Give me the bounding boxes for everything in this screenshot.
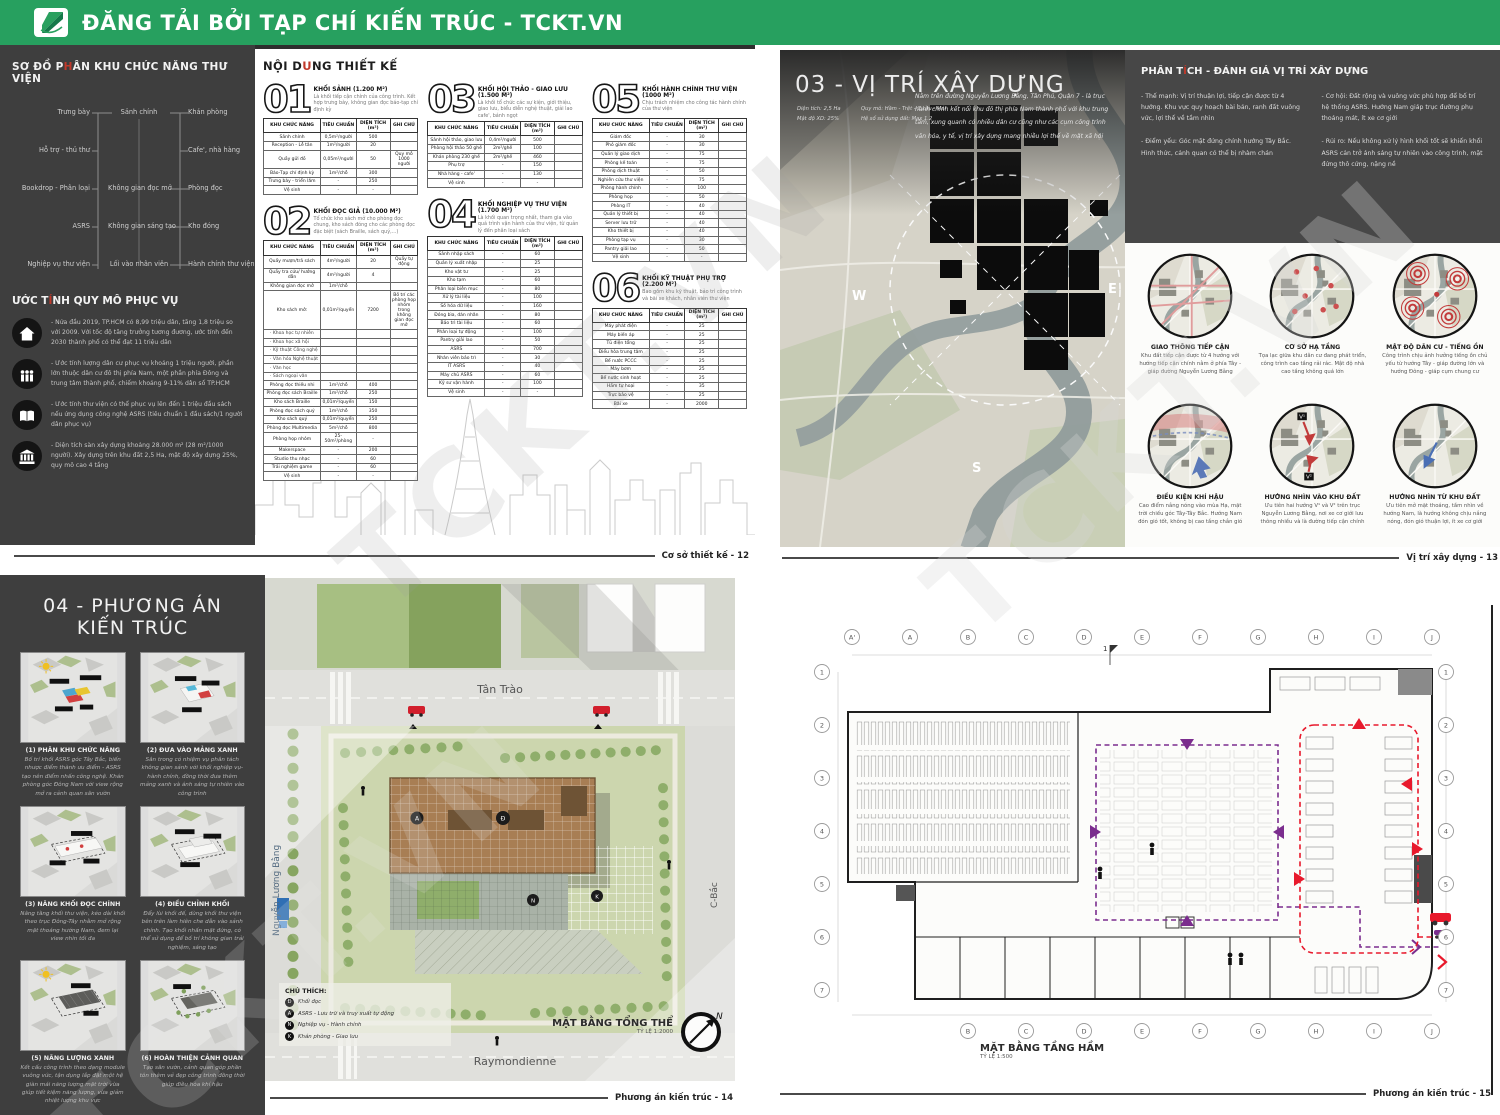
quadrant-footer: Phương án kiến trúc - 15 <box>780 1089 1491 1099</box>
street-label-east: C-Bắc <box>709 882 720 908</box>
footer-rule <box>780 1093 1366 1095</box>
section-number: 01 <box>263 83 311 116</box>
svg-text:N: N <box>716 1012 723 1022</box>
footer-rule <box>14 555 655 557</box>
legend-label: Nghiệp vụ - Hành chính <box>298 1022 361 1028</box>
legend-glyph-icon: N <box>285 1021 294 1030</box>
program-column-2: 03KHỐI HỘI THẢO - GIAO LƯU (1.500 M²)Là … <box>427 83 582 481</box>
compass-letter-s: S <box>972 461 981 476</box>
panel-architecture-concept: 04 - PHƯƠNG ÁN KIẾN TRÚC (1) PHÂN KHU CH… <box>0 575 735 1115</box>
grid-label: 3 <box>820 774 824 782</box>
footer-label: Cơ sở thiết kế - 12 <box>662 551 749 561</box>
legend-label: Khối đọc <box>298 999 321 1005</box>
concept-step: (6) HOÀN THIỆN CẢNH QUANTạo sân vườn, cả… <box>140 960 246 1106</box>
section-desc: Là khối tiếp cận chính của công trình. K… <box>314 94 419 113</box>
site-stat: Diện tích: 2,5 Ha <box>797 106 855 112</box>
basement-plan-art: 1 A'ABBCCDDEEFFGGHHIIJJ11223344556677 <box>800 617 1460 1047</box>
diagram-node: Khán phòng <box>188 108 244 116</box>
concept-step: (2) ĐƯA VÀO MẢNG XANHSân trong có nhiệm … <box>140 652 246 798</box>
step-caption: Đẩy lùi khối đế, dùng khối thư viện bên … <box>140 910 246 952</box>
site-circle: HƯỚNG NHÌN TỪ KHU ĐẤTƯu tiên mở mặt thoá… <box>1378 403 1492 547</box>
step-caption: Kết cấu công trình theo dạng module vuôn… <box>20 1064 126 1106</box>
quadrant-footer: Cơ sở thiết kế - 12 <box>14 551 749 561</box>
analysis-item: - Rủi ro: Nếu không xử lý hình khối tốt … <box>1322 136 1485 169</box>
program-table: KHU CHỨC NĂNGTIÊU CHUẨNDIỆN TÍCH (m²)GHI… <box>263 240 418 481</box>
site-intro: Nằm trên đường Nguyễn Lương Bằng, Tân Ph… <box>915 90 1115 143</box>
step-title: (4) ĐIỀU CHỈNH KHỐI <box>140 901 246 908</box>
circle-map-art: V¹V² <box>1269 403 1355 489</box>
program-section: 06KHỐI KỸ THUẬT PHỤ TRỢ (2.200 M²)Bao gồ… <box>592 272 747 408</box>
diagram-node: Lối vào nhân viên <box>108 260 170 268</box>
step-thumb-art <box>140 806 246 897</box>
diagram-node: Phòng đọc <box>188 184 244 192</box>
grid-label: F <box>1198 633 1202 641</box>
estimate-item: - Ước tính thư viện có thể phục vụ lên đ… <box>12 400 243 430</box>
footer-label: Phương án kiến trúc - 14 <box>615 1093 733 1103</box>
diagram-title: SƠ ĐỒ PHÂN KHU CHỨC NĂNG THƯ VIỆN <box>12 61 243 85</box>
basement-label-box: MẶT BẰNG TẦNG HẦM TỶ LỆ 1:500 <box>980 1043 1104 1060</box>
step-caption: Nâng tầng khối thư viện, kéo dài khối th… <box>20 910 126 944</box>
street-label-south: Raymondienne <box>474 1055 557 1068</box>
street-label-west: Nguyễn Lương Bằng <box>271 845 282 936</box>
grid-label: 3 <box>1444 774 1448 782</box>
program-section: 02KHỐI ĐỌC GIẢ (10.000 M²)Tổ chức kho sá… <box>263 205 418 481</box>
grid-label: F <box>1198 1027 1202 1035</box>
grid-label: G <box>1255 1027 1260 1035</box>
section-head: 04KHỐI NGHIỆP VỤ THƯ VIỆN (1.700 M²)Là k… <box>427 198 582 234</box>
estimate-item: - Ước tính lượng dân cư phục vụ khoảng 1… <box>12 359 243 389</box>
program-column-3: 05KHỐI HÀNH CHÍNH THƯ VIỆN (1000 M²)Chịu… <box>592 83 747 481</box>
panel-basement-plan: 1 A'ABBCCDDEEFFGGHHIIJJ11223344556677 MẶ… <box>780 605 1495 1105</box>
circle-title: HƯỚNG NHÌN TỪ KHU ĐẤT <box>1389 494 1480 501</box>
legend-box: CHÚ THÍCH: ĐKhối đọcAASRS - Lưu trữ và t… <box>279 983 451 1046</box>
grid-label: G <box>1255 633 1260 641</box>
section-number: 03 <box>427 83 475 119</box>
section-number: 06 <box>592 272 640 305</box>
compass-letter-e: E <box>1108 282 1117 297</box>
section-number: 04 <box>427 198 475 234</box>
circle-title: ĐIỀU KIỆN KHÍ HẬU <box>1157 494 1224 501</box>
grid-label: D <box>1081 633 1086 641</box>
section-title: KHỐI ĐỌC GIẢ (10.000 M²) <box>314 209 419 215</box>
concept-step: (5) NĂNG LƯỢNG XANHKết cấu công trình th… <box>20 960 126 1106</box>
circle-title: MẬT ĐỘ DÂN CƯ - TIẾNG ỒN <box>1386 344 1483 351</box>
analysis-list: - Thế mạnh: Vị trí thuận lợi, tiếp cận đ… <box>1141 91 1484 170</box>
building-icon <box>12 441 42 471</box>
plan-label-box: MẶT BẰNG TỔNG THỂ TỶ LỆ 1:2000 <box>552 1018 673 1035</box>
analysis-panel: PHÂN TÍCH - ĐÁNH GIÁ VỊ TRÍ XÂY DỰNG - T… <box>1125 50 1500 243</box>
svg-text:1: 1 <box>1103 645 1107 653</box>
section-head: 05KHỐI HÀNH CHÍNH THƯ VIỆN (1000 M²)Chịu… <box>592 83 747 116</box>
circle-caption: Ưu tiên hai hướng V¹ và V² trên trục Ngu… <box>1255 503 1369 527</box>
street-label-north: Tân Trào <box>476 683 523 696</box>
plan-scale: TỶ LỆ 1:2000 <box>552 1029 673 1035</box>
content-title: NỘI DUNG THIẾT KẾ <box>263 59 747 73</box>
section-title: KHỐI NGHIỆP VỤ THƯ VIỆN (1.700 M²) <box>478 202 583 214</box>
diagram-node: Cafe', nhà hàng <box>188 146 244 154</box>
grid-label: H <box>1314 1027 1319 1035</box>
basement-scale: TỶ LỆ 1:500 <box>980 1054 1104 1060</box>
legend-item: ĐKhối đọc <box>285 998 445 1007</box>
program-table: KHU CHỨC NĂNGTIÊU CHUẨNDIỆN TÍCH (m²)GHI… <box>592 118 747 262</box>
program-section: 04KHỐI NGHIỆP VỤ THƯ VIỆN (1.700 M²)Là k… <box>427 198 582 397</box>
svg-text:V²: V² <box>1306 474 1312 481</box>
section-head: 02KHỐI ĐỌC GIẢ (10.000 M²)Tổ chức kho sá… <box>263 205 418 238</box>
grid-label: 1 <box>820 668 824 676</box>
diagram-node: Kho đóng <box>188 222 244 230</box>
section-desc: Chịu trách nhiệm cho công tác hành chính… <box>642 100 747 113</box>
site-circle: GIAO THÔNG TIẾP CẬNKhu đất tiếp cận được… <box>1133 253 1247 397</box>
grid-label: H <box>1314 633 1319 641</box>
footer-label: Vị trí xây dựng - 13 <box>1406 553 1498 563</box>
program-column-1: 01KHỐI SẢNH (1.200 M²)Là khối tiếp cận c… <box>263 83 418 481</box>
circle-title: GIAO THÔNG TIẾP CẬN <box>1151 344 1230 351</box>
circle-title: CƠ SỞ HẠ TẦNG <box>1285 344 1341 351</box>
program-table: KHU CHỨC NĂNGTIÊU CHUẨNDIỆN TÍCH (m²)GHI… <box>427 121 582 188</box>
panel-border <box>1491 605 1493 1095</box>
diagram-node: Hỗ trợ - thủ thư <box>12 146 90 154</box>
circle-map-art <box>1392 253 1478 339</box>
grid-label: C <box>1024 633 1029 641</box>
grid-label: B <box>966 633 970 641</box>
concept-step: (1) PHÂN KHU CHỨC NĂNGBố trí khối ASRS g… <box>20 652 126 798</box>
concept-steps: (1) PHÂN KHU CHỨC NĂNGBố trí khối ASRS g… <box>20 652 245 1106</box>
compass-letter-w: W <box>852 289 866 304</box>
step-thumb-art <box>20 652 126 743</box>
grid-label: D <box>1081 1027 1086 1035</box>
step-title: (1) PHÂN KHU CHỨC NĂNG <box>20 747 126 754</box>
site-map: W E S 03 - VỊ TRÍ XÂY DỰNG Diện tích: 2,… <box>780 50 1500 547</box>
banner-title: ĐĂNG TẢI BỞI TẠP CHÍ KIẾN TRÚC - TCKT.VN <box>82 11 623 35</box>
grid-label: A' <box>849 633 855 641</box>
estimate-item: - Diện tích sàn xây dựng khoảng 28.000 m… <box>12 441 243 471</box>
grid-label: 5 <box>820 880 824 888</box>
legend-glyph-icon: Đ <box>285 998 294 1007</box>
concept-step: (3) NÂNG KHỐI ĐỌC CHÍNHNâng tầng khối th… <box>20 806 126 952</box>
grid-label: I <box>1373 633 1375 641</box>
estimate-text: - Ước tính lượng dân cư phục vụ khoảng 1… <box>51 359 243 388</box>
program-section: 05KHỐI HÀNH CHÍNH THƯ VIỆN (1000 M²)Chịu… <box>592 83 747 262</box>
concept-sidebar: 04 - PHƯƠNG ÁN KIẾN TRÚC (1) PHÂN KHU CH… <box>0 575 265 1115</box>
section-desc: Là khối quan trọng nhất, tham gia vào qu… <box>478 215 583 234</box>
site-circle: ĐIỀU KIỆN KHÍ HẬUCao điểm nắng nóng vào … <box>1133 403 1247 547</box>
program-content: NỘI DUNG THIẾT KẾ 01KHỐI SẢNH (1.200 M²)… <box>255 45 755 545</box>
step-caption: Bố trí khối ASRS góc Tây Bắc, biến nhược… <box>20 756 126 798</box>
step-thumb-art <box>140 652 246 743</box>
section-desc: Bao gồm khu kỹ thuật, bảo trì công trình… <box>642 289 747 302</box>
section-title: KHỐI HỘI THẢO - GIAO LƯU (1.500 M²) <box>478 87 583 99</box>
program-section: 03KHỐI HỘI THẢO - GIAO LƯU (1.500 M²)Là … <box>427 83 582 188</box>
circle-caption: Khu đất tiếp cận được từ 4 hướng với hướ… <box>1133 353 1247 377</box>
estimate-title: ƯỚC TÍNH QUY MÔ PHỤC VỤ <box>12 295 243 307</box>
grid-label: B <box>966 1027 970 1035</box>
panel-design-basis: SƠ ĐỒ PHÂN KHU CHỨC NĂNG THƯ VIỆN Trưng … <box>0 45 755 565</box>
step-title: (3) NÂNG KHỐI ĐỌC CHÍNH <box>20 901 126 908</box>
grid-label: 1 <box>1444 668 1448 676</box>
estimate-item: - Nửa đầu 2019, TP.HCM có 8,99 triệu dân… <box>12 318 243 348</box>
function-diagram: Trưng bàyHỗ trợ - thủ thưBookdrop - Phân… <box>12 101 243 287</box>
estimate-list: - Nửa đầu 2019, TP.HCM có 8,99 triệu dân… <box>12 318 243 471</box>
grid-label: 6 <box>820 933 824 941</box>
grid-label: 7 <box>820 986 824 994</box>
program-table: KHU CHỨC NĂNGTIÊU CHUẨNDIỆN TÍCH (m²)GHI… <box>427 236 582 397</box>
grid-label: C <box>1024 1027 1029 1035</box>
diagram-node: Không gian sáng tạo <box>108 222 170 230</box>
program-columns: 01KHỐI SẢNH (1.200 M²)Là khối tiếp cận c… <box>263 83 747 481</box>
analysis-item: - Thế mạnh: Vị trí thuận lợi, tiếp cận đ… <box>1141 91 1304 124</box>
grid-label: J <box>1430 633 1433 641</box>
panel-site-location: W E S 03 - VỊ TRÍ XÂY DỰNG Diện tích: 2,… <box>780 50 1500 565</box>
concept-step: (4) ĐIỀU CHỈNH KHỐIĐẩy lùi khối đế, dùng… <box>140 806 246 952</box>
diagram-node: Hành chính thư viện <box>188 260 244 268</box>
svg-text:V¹: V¹ <box>1300 413 1306 420</box>
circle-caption: Cao điểm nắng nóng vào mùa Hạ, mặt trời … <box>1133 503 1247 527</box>
step-title: (5) NĂNG LƯỢNG XANH <box>20 1055 126 1062</box>
grid-label: E <box>1140 633 1144 641</box>
step-thumb-art <box>140 960 246 1051</box>
site-circle: V¹V²HƯỚNG NHÌN VÀO KHU ĐẤTƯu tiên hai hư… <box>1255 403 1369 547</box>
legend-label: Khán phòng - Giao lưu <box>298 1034 358 1040</box>
legend-item: AASRS - Lưu trữ và truy xuất tự động <box>285 1009 445 1018</box>
grid-label: 2 <box>820 721 824 729</box>
grid-label: J <box>1430 1027 1433 1035</box>
section-head: 01KHỐI SẢNH (1.200 M²)Là khối tiếp cận c… <box>263 83 418 116</box>
svg-text:N: N <box>531 899 535 905</box>
circle-map-art <box>1147 253 1233 339</box>
grid-label: 4 <box>1444 827 1448 835</box>
step-title: (6) HOÀN THIỆN CẢNH QUAN <box>140 1055 246 1062</box>
car-icon <box>1430 913 1451 925</box>
footer-rule <box>270 1097 608 1099</box>
legend-glyph-icon: A <box>285 1009 294 1018</box>
tckt-logo-icon <box>34 8 68 37</box>
section-title: KHỐI KỸ THUẬT PHỤ TRỢ (2.200 M²) <box>642 276 747 288</box>
section-head: 06KHỐI KỸ THUẬT PHỤ TRỢ (2.200 M²)Bao gồ… <box>592 272 747 305</box>
grid-label: E <box>1140 1027 1144 1035</box>
plan-label: MẶT BẰNG TỔNG THỂ <box>552 1018 673 1029</box>
footer-rule <box>782 557 1399 559</box>
estimate-text: - Ước tính thư viện có thể phục vụ lên đ… <box>51 400 243 429</box>
legend-item: KKhán phòng - Giao lưu <box>285 1032 445 1041</box>
circle-caption: Ưu tiên mở mặt thoáng, tầm nhìn về hướng… <box>1378 503 1492 527</box>
legend-item: NNghiệp vụ - Hành chính <box>285 1021 445 1030</box>
step-caption: Tạo sân vườn, cảnh quan góp phần tôn thê… <box>140 1064 246 1089</box>
circle-map-art <box>1147 403 1233 489</box>
step-thumb-art <box>20 806 126 897</box>
grid-label: 6 <box>1444 933 1448 941</box>
banner: ĐĂNG TẢI BỞI TẠP CHÍ KIẾN TRÚC - TCKT.VN <box>0 0 1500 45</box>
analysis-title: PHÂN TÍCH - ĐÁNH GIÁ VỊ TRÍ XÂY DỰNG <box>1141 66 1484 77</box>
analysis-item: - Cơ hội: Đất rộng và vuông vức phù hợp … <box>1322 91 1485 124</box>
legend-glyph-icon: K <box>285 1032 294 1041</box>
legend-title: CHÚ THÍCH: <box>285 988 445 995</box>
grid-label: 7 <box>1444 986 1448 994</box>
program-table: KHU CHỨC NĂNGTIÊU CHUẨNDIỆN TÍCH (m²)GHI… <box>592 308 747 409</box>
north-compass-icon: N <box>679 1008 725 1054</box>
grid-label: 5 <box>1444 880 1448 888</box>
people-icon <box>12 359 42 389</box>
diagram-node: Nghiệp vụ thư viện <box>12 260 90 268</box>
grid-label: 4 <box>820 827 824 835</box>
step-caption: Sân trong có nhiệm vụ phân tách không gi… <box>140 756 246 798</box>
section-desc: Là khối tổ chức các sự kiện, giới thiệu,… <box>478 100 583 119</box>
circle-title: HƯỚNG NHÌN VÀO KHU ĐẤT <box>1264 494 1360 501</box>
section-head: 03KHỐI HỘI THẢO - GIAO LƯU (1.500 M²)Là … <box>427 83 582 119</box>
circle-map-art <box>1392 403 1478 489</box>
circle-map-art <box>1269 253 1355 339</box>
concept-title: 04 - PHƯƠNG ÁN KIẾN TRÚC <box>20 595 245 639</box>
circle-caption: Tọa lạc giữa khu dân cư đang phát triển,… <box>1255 353 1369 377</box>
estimate-text: - Diện tích sàn xây dựng khoảng 28.000 m… <box>51 441 243 470</box>
basement-title: MẶT BẰNG TẦNG HẦM <box>980 1043 1104 1054</box>
quadrant-footer: Phương án kiến trúc - 14 <box>270 1093 733 1103</box>
legend-items: ĐKhối đọcAASRS - Lưu trữ và truy xuất tự… <box>285 998 445 1042</box>
master-siteplan: A Đ N K Tân Trào Nguyễn Lương Bằng C-Bắc <box>265 578 735 1081</box>
program-table: KHU CHỨC NĂNGTIÊU CHUẨNDIỆN TÍCH (m²)GHI… <box>263 118 418 195</box>
section-number: 05 <box>592 83 640 116</box>
diagram-node: ASRS <box>12 222 90 230</box>
presentation-board: ĐĂNG TẢI BỞI TẠP CHÍ KIẾN TRÚC - TCKT.VN… <box>0 0 1500 1115</box>
section-title: KHỐI HÀNH CHÍNH THƯ VIỆN (1000 M²) <box>642 87 747 99</box>
site-circle: MẬT ĐỘ DÂN CƯ - TIẾNG ỒNCông trình chịu … <box>1378 253 1492 397</box>
footer-label: Phương án kiến trúc - 15 <box>1373 1089 1491 1099</box>
program-section: 01KHỐI SẢNH (1.200 M²)Là khối tiếp cận c… <box>263 83 418 195</box>
circle-caption: Công trình chịu ảnh hưởng tiếng ồn chủ y… <box>1378 353 1492 377</box>
quadrant-footer: Vị trí xây dựng - 13 <box>782 553 1498 563</box>
book-icon <box>12 400 42 430</box>
svg-text:K: K <box>595 895 599 901</box>
step-thumb-art <box>20 960 126 1051</box>
diagram-node: Không gian đọc mở <box>108 184 170 192</box>
grid-label: I <box>1373 1027 1375 1035</box>
step-title: (2) ĐƯA VÀO MẢNG XANH <box>140 747 246 754</box>
svg-text:Đ: Đ <box>501 816 506 823</box>
section-desc: Tổ chức kho sách mở cho phòng đọc chung,… <box>314 216 419 235</box>
grid-label: A <box>908 633 913 641</box>
house-icon <box>12 318 42 348</box>
legend-label: ASRS - Lưu trữ và truy xuất tự động <box>298 1011 394 1017</box>
section-number: 02 <box>263 205 311 238</box>
site-circle: CƠ SỞ HẠ TẦNGTọa lạc giữa khu dân cư đan… <box>1255 253 1369 397</box>
diagram-node: Trưng bày <box>12 108 90 116</box>
analysis-circles: GIAO THÔNG TIẾP CẬNKhu đất tiếp cận được… <box>1125 243 1500 547</box>
site-stat: Mật độ XD: 25% <box>797 116 855 122</box>
grid-label: 2 <box>1444 721 1448 729</box>
program-sidebar: SƠ ĐỒ PHÂN KHU CHỨC NĂNG THƯ VIỆN Trưng … <box>0 45 255 545</box>
estimate-text: - Nửa đầu 2019, TP.HCM có 8,99 triệu dân… <box>51 318 243 347</box>
section-title: KHỐI SẢNH (1.200 M²) <box>314 87 419 93</box>
diagram-node: Bookdrop - Phân loại <box>12 184 90 192</box>
analysis-item: - Điểm yếu: Góc mặt đứng chính hướng Tây… <box>1141 136 1304 169</box>
diagram-node: Sảnh chính <box>108 108 170 116</box>
